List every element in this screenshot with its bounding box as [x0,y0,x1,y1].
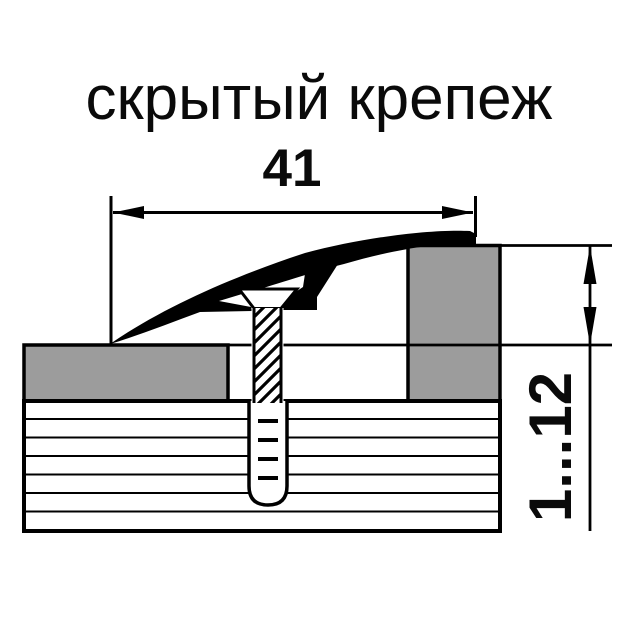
arrow-right-icon [442,206,473,219]
height-dimension [584,246,597,531]
left-flooring-block [24,345,228,401]
arrow-up-icon [584,246,597,284]
right-flooring-block [408,246,500,402]
arrow-left-icon [113,206,144,219]
screw-hole-outline [249,401,287,505]
technical-drawing-page: скрытый крепеж 41 1...12 [0,0,638,639]
profile-cross-section-diagram [0,0,638,639]
arrow-down-icon [584,307,597,345]
